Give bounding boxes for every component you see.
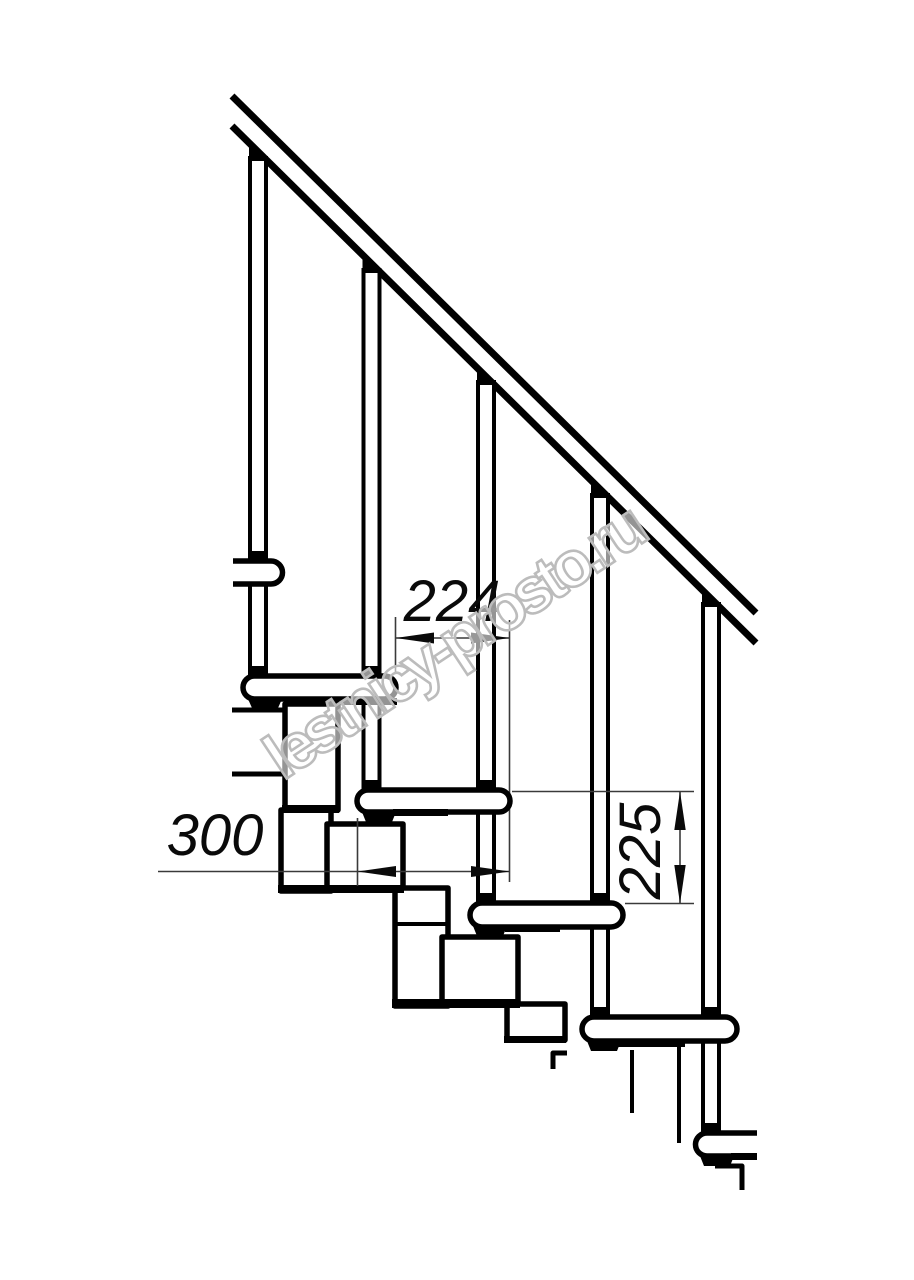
connector xyxy=(590,1007,610,1018)
rail-wedge xyxy=(702,589,720,607)
connector xyxy=(362,780,382,791)
tread-5 xyxy=(582,1017,737,1041)
module-box xyxy=(327,824,403,890)
dim-arrow-up xyxy=(674,792,685,831)
connector xyxy=(476,893,496,904)
tread-clamp xyxy=(362,812,396,822)
rail-wedge xyxy=(249,143,267,161)
dim-label-tread-depth: 300 xyxy=(167,803,264,868)
tread-clamp xyxy=(473,926,507,936)
tread-1 xyxy=(233,561,283,584)
rail-wedge xyxy=(591,480,609,498)
dim-arrow-down xyxy=(674,865,685,904)
cutoff-hook xyxy=(553,1053,567,1069)
tread-clamp xyxy=(248,699,282,708)
connector xyxy=(701,1007,721,1018)
tread-6 xyxy=(696,1133,758,1156)
connector xyxy=(590,893,610,904)
baluster-5 xyxy=(703,604,719,1138)
drawing-canvas: 224 300 225 lestnicy-prosto.ru xyxy=(0,0,914,1280)
connector xyxy=(248,666,268,677)
tread-clamp xyxy=(700,1156,734,1166)
rail-wedge xyxy=(363,255,381,273)
baluster-1 xyxy=(250,158,266,682)
dim-label-rise: 225 xyxy=(608,802,673,901)
module-box xyxy=(507,1004,565,1040)
tread-4 xyxy=(470,903,623,927)
tread-shadow xyxy=(731,1153,757,1160)
cutoff-hook xyxy=(715,1166,742,1190)
connector xyxy=(476,780,496,791)
rail-wedge xyxy=(477,367,495,385)
staircase-technical-drawing: 224 300 225 lestnicy-prosto.ru xyxy=(0,0,914,1280)
connector xyxy=(701,1123,721,1134)
tread-3 xyxy=(357,790,510,812)
module-box xyxy=(281,810,331,891)
tread-shadow xyxy=(393,809,448,816)
connector xyxy=(248,551,268,562)
tread-shadow xyxy=(615,1040,685,1047)
tread-shadow xyxy=(505,925,560,932)
module-box xyxy=(442,937,518,1004)
